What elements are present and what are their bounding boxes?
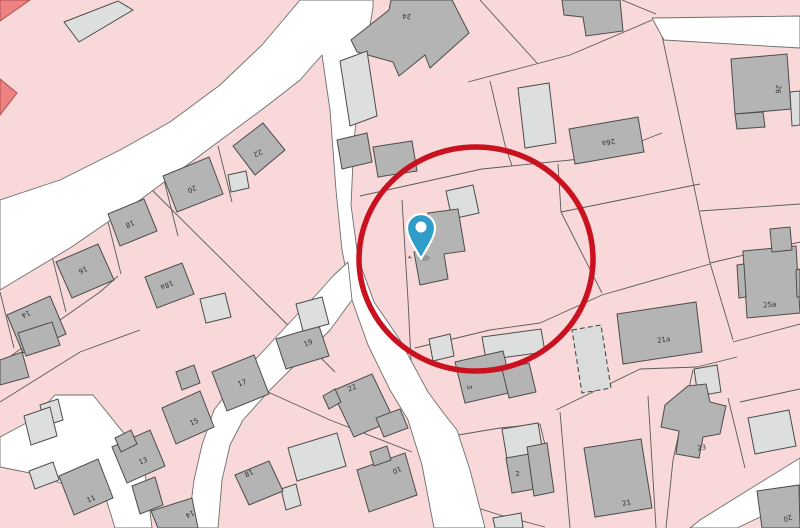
house-number-label: 24 [402,12,412,21]
building-footprint [757,485,800,528]
building-footprint [584,439,652,517]
house-number-label: 25a [763,300,777,309]
building-footprint [228,171,249,192]
building-footprint [737,264,746,298]
house-number-label: 26 [774,84,783,94]
building-footprint [770,227,792,252]
building-footprint [731,54,791,114]
building-footprint [735,112,765,129]
map-canvas[interactable]: 2220181618a142426a2625a21a23212541715131… [0,0,800,528]
building-footprint [429,334,454,361]
building-footprint [373,141,417,177]
building-footprint [796,269,800,297]
building-footprint [748,410,796,454]
pin-center-hole [416,222,427,233]
house-number-label: 23 [697,443,707,452]
building-footprint [518,83,556,148]
building-footprint [790,91,800,126]
map-viewport[interactable]: 2220181618a142426a2625a21a23212541715131… [0,0,800,528]
building-footprint [337,133,372,169]
building-footprint [200,293,231,323]
